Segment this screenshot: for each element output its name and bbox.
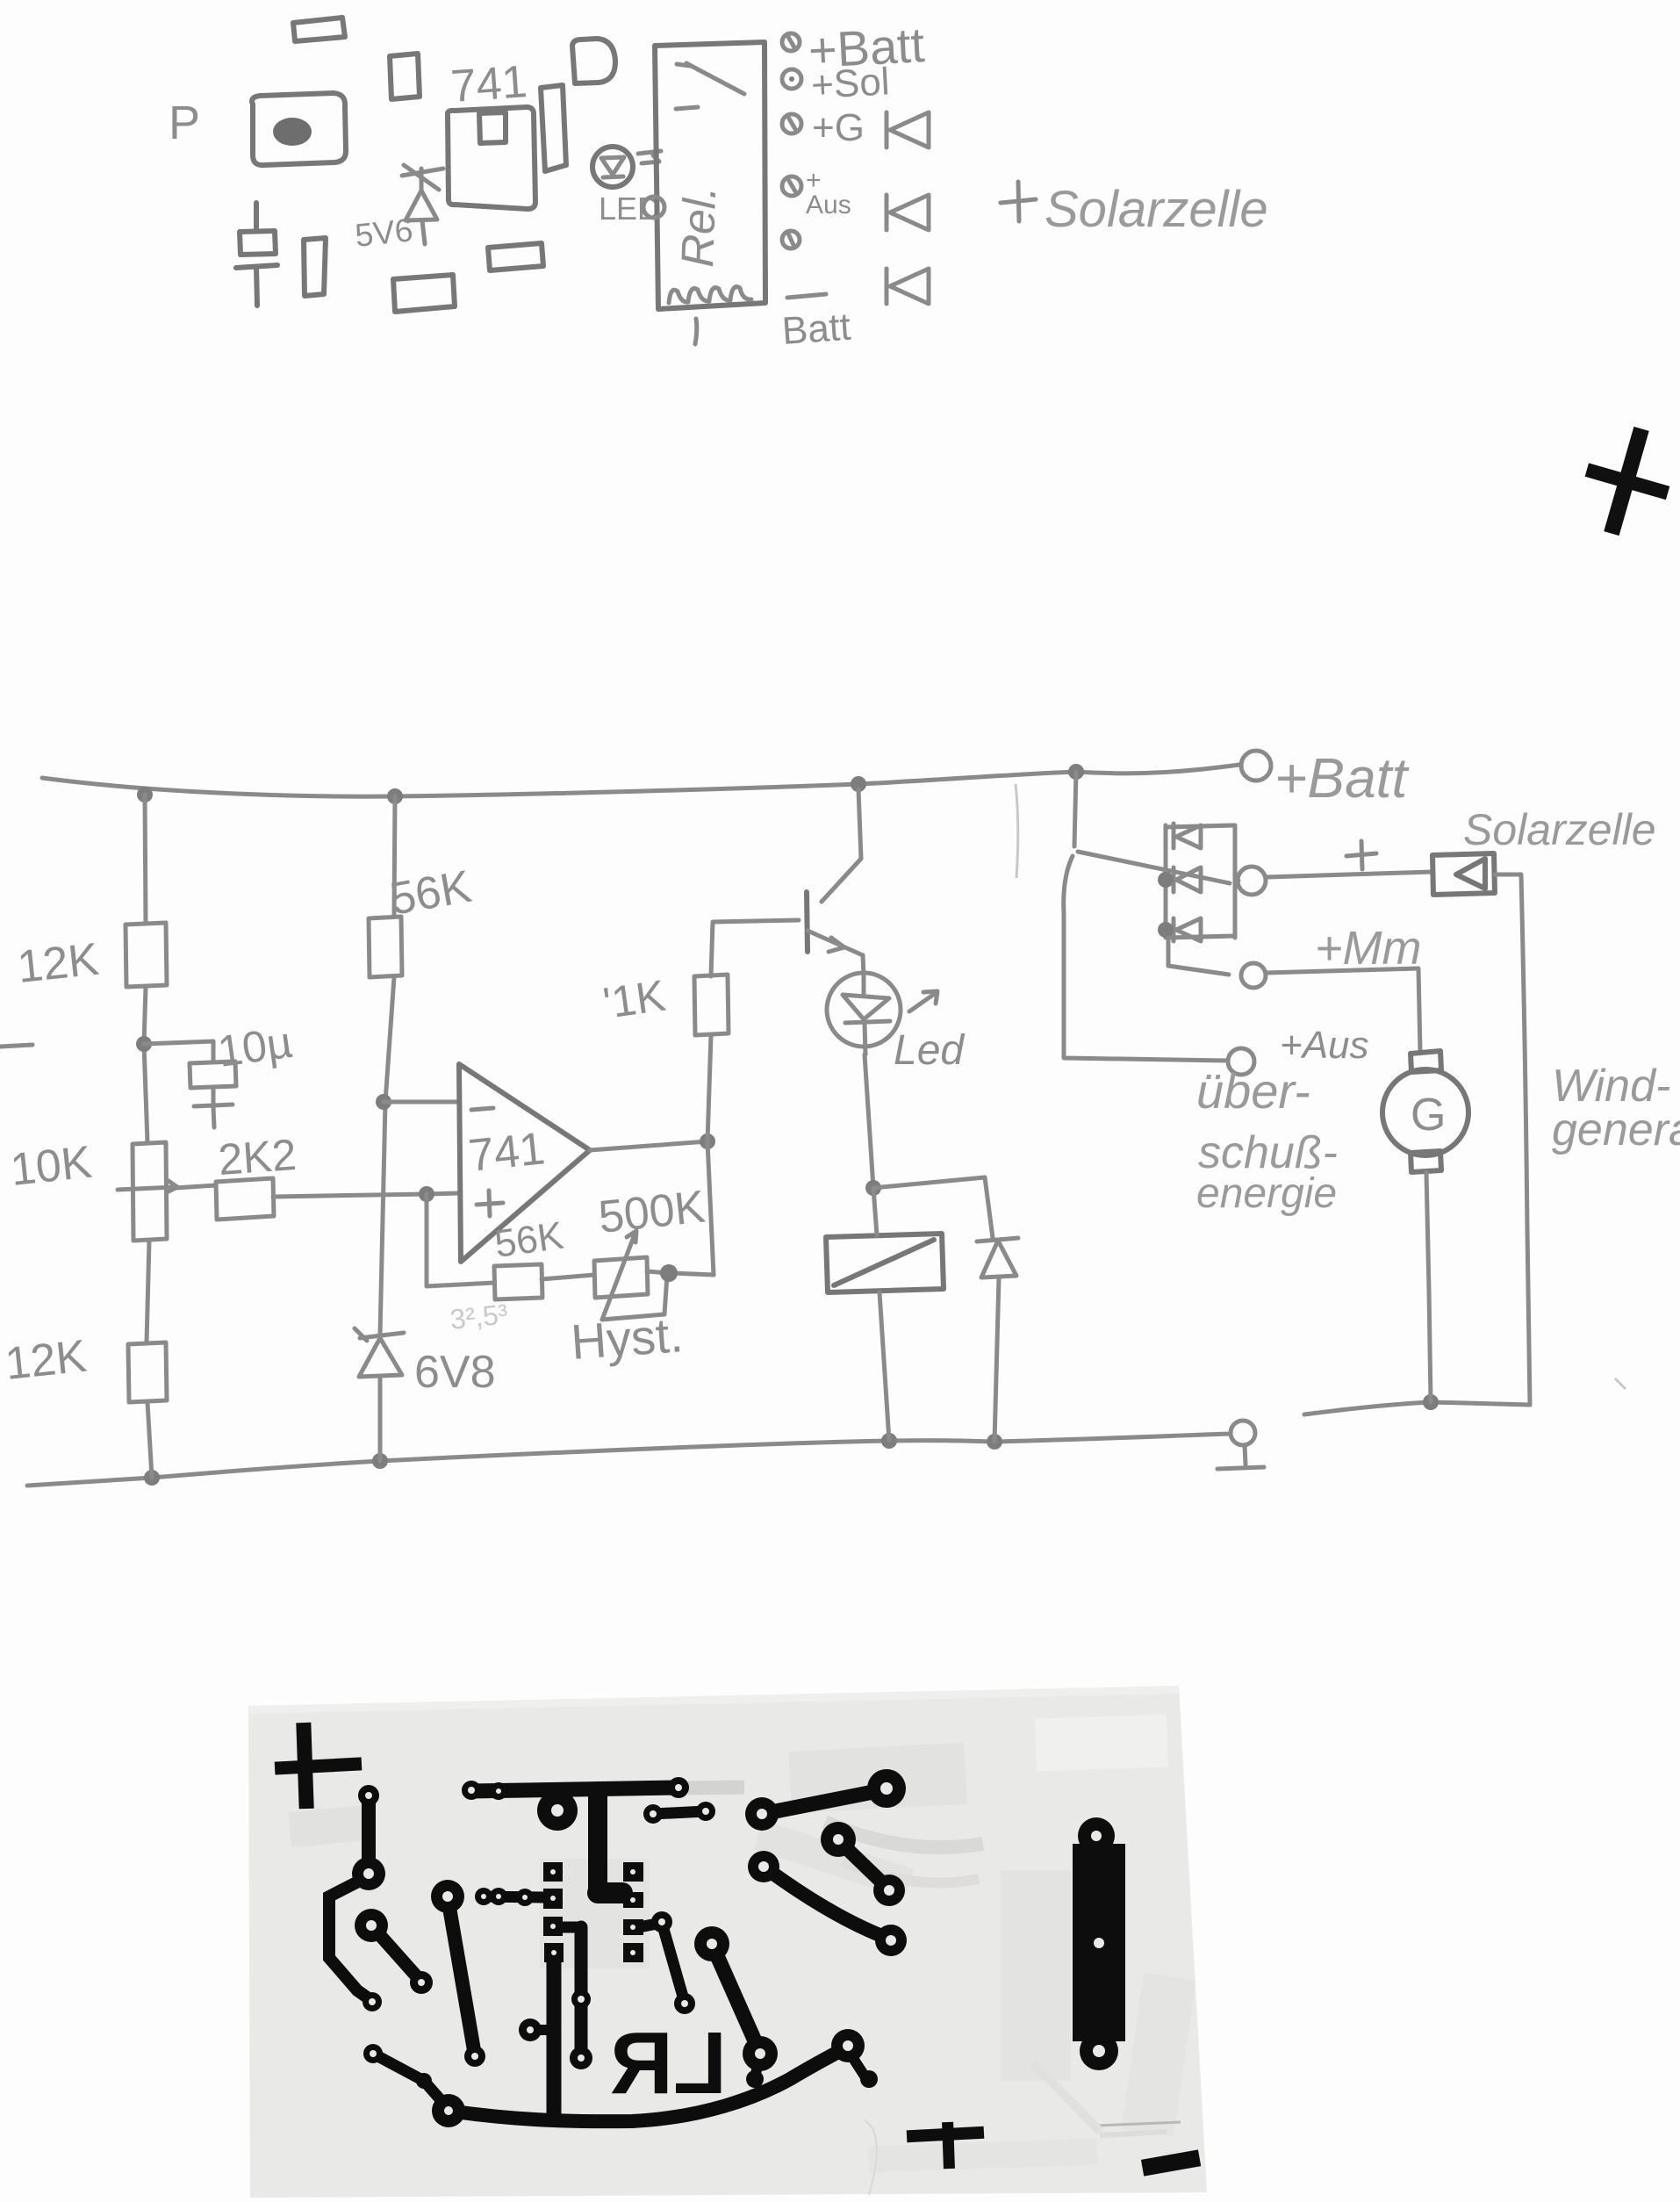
svg-text:3²,5³: 3²,5³ [449,1298,510,1335]
svg-text:741: 741 [449,56,529,112]
svg-text:Led: Led [894,1027,965,1074]
svg-text:ʹ1K: ʹ1K [600,971,669,1028]
svg-text:+Aus: +Aus [1280,1024,1369,1067]
svg-text:12K: 12K [3,1331,89,1390]
svg-text:Rel.: Rel. [672,185,726,268]
svg-text:2K2: 2K2 [217,1130,298,1184]
svg-text:über-: über- [1196,1063,1310,1119]
svg-text:LR: LR [610,2014,727,2112]
svg-text:5V6: 5V6 [354,212,415,254]
svg-text:genera: genera [1552,1105,1680,1155]
svg-text:Aus: Aus [806,191,851,219]
svg-text:Solarzelle: Solarzelle [1045,181,1268,238]
svg-text:energie: energie [1196,1170,1337,1217]
svg-text:Batt: Batt [780,306,852,353]
svg-text:G: G [1411,1090,1446,1141]
svg-text:12K: 12K [15,934,101,993]
svg-text:+Batt: +Batt [1274,746,1409,810]
svg-text:+Mm: +Mm [1315,922,1422,975]
svg-text:10µ: 10µ [215,1018,295,1076]
svg-text:10K: 10K [8,1137,94,1196]
svg-text:741: 741 [466,1123,547,1182]
svg-text:Hyst.: Hyst. [569,1306,685,1370]
svg-text:P: P [169,97,200,149]
svg-text:Solarzelle: Solarzelle [1463,805,1656,854]
svg-text:+G: +G [812,106,865,149]
svg-text:+Sol: +Sol [810,60,891,107]
svg-text:6V8: 6V8 [414,1347,496,1398]
